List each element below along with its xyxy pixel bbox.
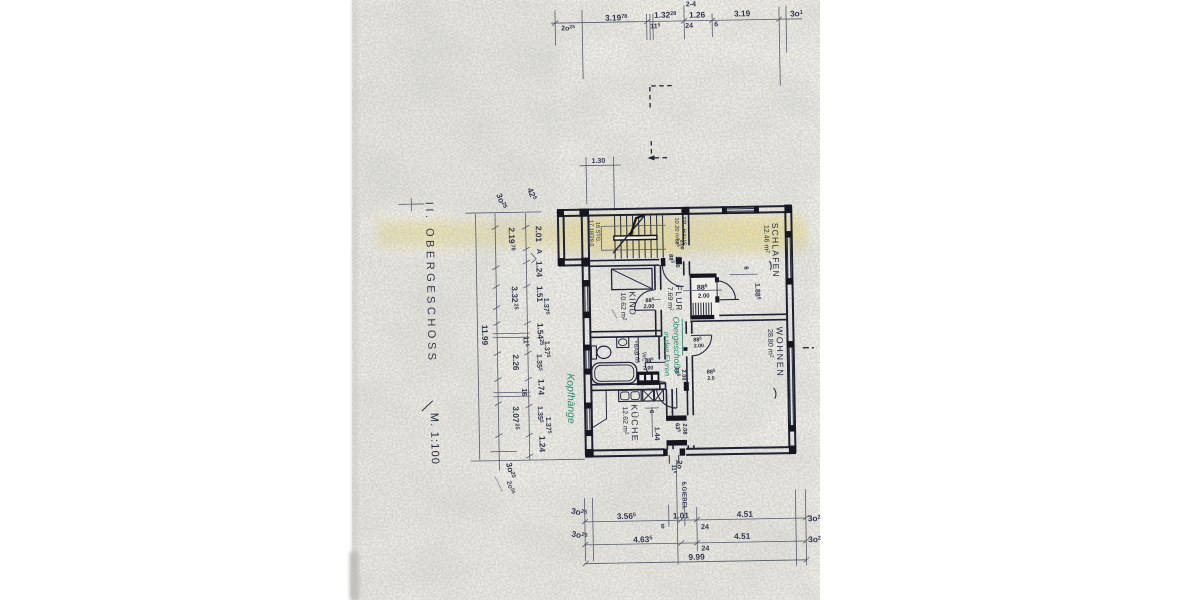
svg-text:4.51: 4.51 bbox=[737, 509, 754, 519]
svg-text:1.24: 1.24 bbox=[537, 436, 547, 453]
svg-text:6: 6 bbox=[661, 523, 665, 530]
svg-text:10.62 m2: 10.62 m2 bbox=[619, 292, 627, 320]
svg-text:6.65: 6.65 bbox=[633, 352, 639, 363]
svg-text:in den Fluren: in den Fluren bbox=[662, 332, 672, 376]
svg-text:4.51: 4.51 bbox=[734, 531, 751, 541]
svg-text:2.00: 2.00 bbox=[694, 343, 704, 349]
svg-text:WC: WC bbox=[640, 352, 646, 362]
svg-text:12.62 m2: 12.62 m2 bbox=[621, 406, 629, 434]
svg-text:1.30: 1.30 bbox=[592, 158, 606, 165]
svg-text:28.80 m2: 28.80 m2 bbox=[766, 329, 776, 358]
svg-text:24: 24 bbox=[685, 23, 693, 30]
svg-text:12.46 m2: 12.46 m2 bbox=[762, 225, 770, 253]
svg-text:Kopfhänge: Kopfhänge bbox=[564, 373, 576, 424]
svg-text:SCHLAFEN: SCHLAFEN bbox=[770, 223, 781, 278]
svg-text:2.01: 2.01 bbox=[534, 226, 544, 243]
svg-text:9.99: 9.99 bbox=[688, 552, 705, 562]
svg-text:2.08: 2.08 bbox=[681, 423, 687, 434]
svg-text:2.26: 2.26 bbox=[511, 354, 521, 371]
svg-text:M. 1:100: M. 1:100 bbox=[428, 413, 441, 466]
svg-text:3.19: 3.19 bbox=[734, 8, 751, 18]
svg-text:11.99: 11.99 bbox=[480, 325, 490, 346]
svg-text:2.00: 2.00 bbox=[644, 304, 655, 310]
svg-text:Obergeschoße: Obergeschoße bbox=[671, 316, 682, 373]
svg-text:1.74: 1.74 bbox=[536, 379, 546, 396]
svg-text:A: A bbox=[535, 249, 542, 254]
svg-text:2-4: 2-4 bbox=[686, 1, 696, 8]
svg-text:TR. HAUS: TR. HAUS bbox=[680, 216, 687, 246]
svg-text:24: 24 bbox=[701, 522, 709, 531]
svg-text:1.01: 1.01 bbox=[673, 510, 690, 520]
svg-text:6: 6 bbox=[714, 21, 718, 28]
svg-text:6.GIEBEL: 6.GIEBEL bbox=[680, 481, 687, 510]
svg-text:KÜCHE: KÜCHE bbox=[629, 404, 640, 442]
svg-text:16: 16 bbox=[520, 388, 529, 396]
svg-text:17.18/29.0: 17.18/29.0 bbox=[588, 220, 594, 247]
svg-text:1.44: 1.44 bbox=[653, 427, 660, 441]
svg-text:KIND: KIND bbox=[627, 291, 637, 316]
svg-text:FLUR: FLUR bbox=[674, 285, 684, 311]
svg-text:1.24: 1.24 bbox=[534, 261, 544, 278]
svg-text:7.69 m2: 7.69 m2 bbox=[666, 287, 674, 312]
svg-text:2.0: 2.0 bbox=[707, 376, 714, 382]
svg-text:2.00: 2.00 bbox=[643, 365, 653, 371]
svg-text:2.00: 2.00 bbox=[698, 294, 710, 300]
svg-text:1.26: 1.26 bbox=[689, 9, 706, 19]
svg-text:10.20 m2: 10.20 m2 bbox=[673, 217, 681, 240]
svg-text:16 STG.: 16 STG. bbox=[594, 222, 600, 243]
svg-text:24: 24 bbox=[701, 544, 709, 553]
svg-text:2.00: 2.00 bbox=[674, 256, 680, 267]
